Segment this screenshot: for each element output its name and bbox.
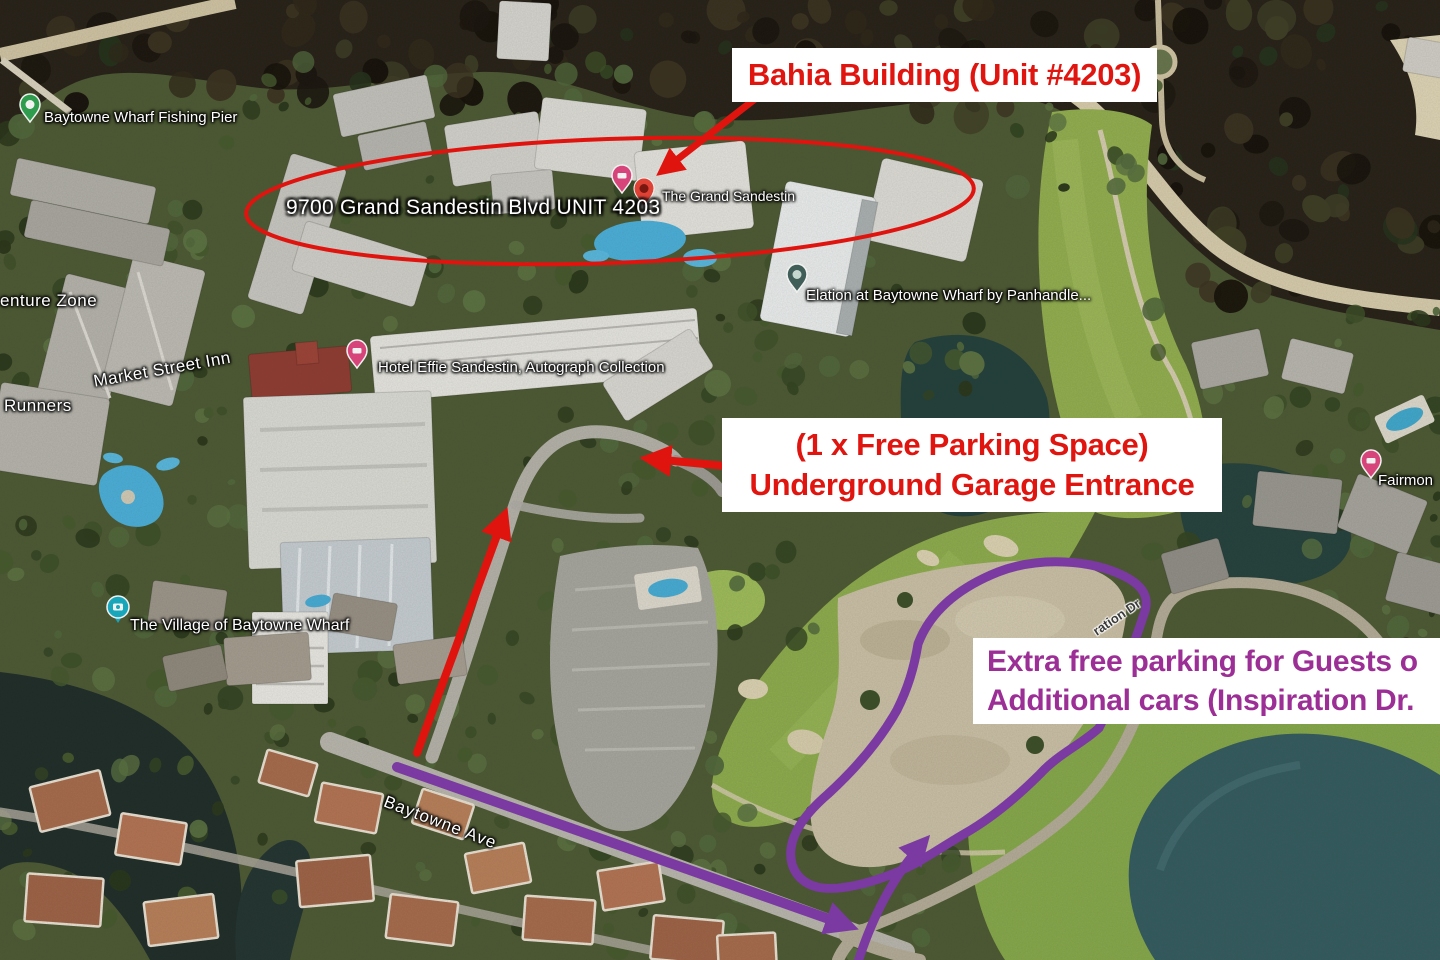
road-up-arrow [417, 519, 503, 753]
pools [99, 218, 1435, 610]
callout-text: Additional cars (Inspiration Dr. [987, 681, 1414, 720]
map-labels-layer: Baytowne Wharf Fishing Pier enture Zone … [0, 0, 1440, 960]
lot-entry-arrow [858, 844, 922, 960]
marsh-texture [14, 0, 1440, 317]
land-base [0, 0, 1440, 960]
label-market-street-inn: Market Street Inn [92, 348, 232, 392]
map-pins [20, 94, 1381, 623]
marsh [0, 0, 1440, 330]
label-grand-sandestin: The Grand Sandestin [662, 188, 795, 204]
shoreline [0, 0, 1440, 308]
sand-bunker [946, 570, 979, 594]
label-village: The Village of Baytowne Wharf [130, 617, 349, 635]
inspiration-dr-road [862, 583, 1392, 930]
label-inspiration-dr: ration Dr [1090, 596, 1143, 639]
annotation-overlay [0, 0, 1440, 960]
buildings [0, 1, 1440, 960]
label-hotel-effie: Hotel Effie Sandestin, Autograph Collect… [378, 359, 665, 376]
callout-text: Bahia Building (Unit #4203) [748, 55, 1141, 95]
dirt-parking-area [810, 561, 1126, 867]
neighborhood-street [0, 812, 700, 960]
grain-overlay [0, 0, 1440, 960]
cart-path [712, 785, 1005, 853]
lodging-pin-icon [347, 340, 367, 368]
baytowne-ave-route-arrow [397, 767, 846, 925]
dark-place-pin-icon [787, 264, 807, 292]
cart-path [1100, 130, 1197, 502]
callout-text: (1 x Free Parking Space) [796, 425, 1149, 465]
bahia-arrow [665, 99, 755, 169]
sand-bunker [738, 679, 768, 699]
fishing-pier-walkway [2, 60, 70, 112]
callout-text: Underground Garage Entrance [750, 465, 1195, 505]
green-place-pin-icon [20, 94, 40, 122]
sand-bunker [785, 726, 828, 758]
lagoon [0, 672, 242, 960]
overlook-platform [1145, 47, 1175, 77]
purple-parking-route [397, 562, 1146, 960]
label-baytowne-ave: Baytowne Ave [381, 792, 500, 853]
bay-water [0, 0, 120, 125]
sand-bunker [981, 531, 1021, 561]
callout-bahia-building: Bahia Building (Unit #4203) [732, 48, 1157, 102]
elation-building [759, 181, 878, 338]
roads [0, 432, 1392, 960]
teal-camera-pin-icon [107, 596, 129, 623]
golf-course [681, 109, 1440, 960]
resort-access-road [432, 432, 676, 757]
lodging-pin-icon [612, 165, 632, 193]
label-unit-address: 9700 Grand Sandestin Blvd UNIT 4203 [286, 196, 660, 220]
lodging-pin-icon [1361, 450, 1381, 478]
boardwalk [1158, 0, 1205, 180]
label-fishing-pier: Baytowne Wharf Fishing Pier [44, 109, 237, 126]
building-circle [244, 126, 976, 275]
lake [1129, 734, 1440, 960]
label-runners: Runners [4, 396, 72, 416]
callout-extra-parking: Extra free parking for Guests o Addition… [973, 638, 1440, 724]
red-place-pin-icon [634, 178, 654, 206]
putting-green [681, 570, 765, 630]
inspiration-loop [791, 562, 1146, 889]
tree-canopy [0, 47, 1440, 960]
red-roof-building [248, 341, 352, 400]
garage-ramp [676, 460, 722, 492]
red-annotations [244, 99, 976, 753]
annotated-satellite-map: Baytowne Wharf Fishing Pier enture Zone … [0, 0, 1440, 960]
satellite-imagery [0, 0, 1440, 960]
label-elation: Elation at Baytowne Wharf by Panhandle..… [806, 287, 1091, 304]
callout-garage-parking: (1 x Free Parking Space) Underground Gar… [722, 418, 1222, 512]
label-adventure-zone: enture Zone [0, 291, 97, 311]
residential-houses [24, 749, 776, 960]
sand-bunker [914, 547, 942, 570]
baytowne-ave-road [330, 742, 905, 952]
label-fairmont: Fairmon [1378, 472, 1433, 489]
garage-arrow [652, 459, 726, 466]
surface-parking-lot [550, 545, 718, 831]
callout-text: Extra free parking for Guests o [987, 642, 1418, 681]
water-bodies [0, 335, 1440, 960]
callout-layer: Bahia Building (Unit #4203) (1 x Free Pa… [0, 0, 1440, 960]
